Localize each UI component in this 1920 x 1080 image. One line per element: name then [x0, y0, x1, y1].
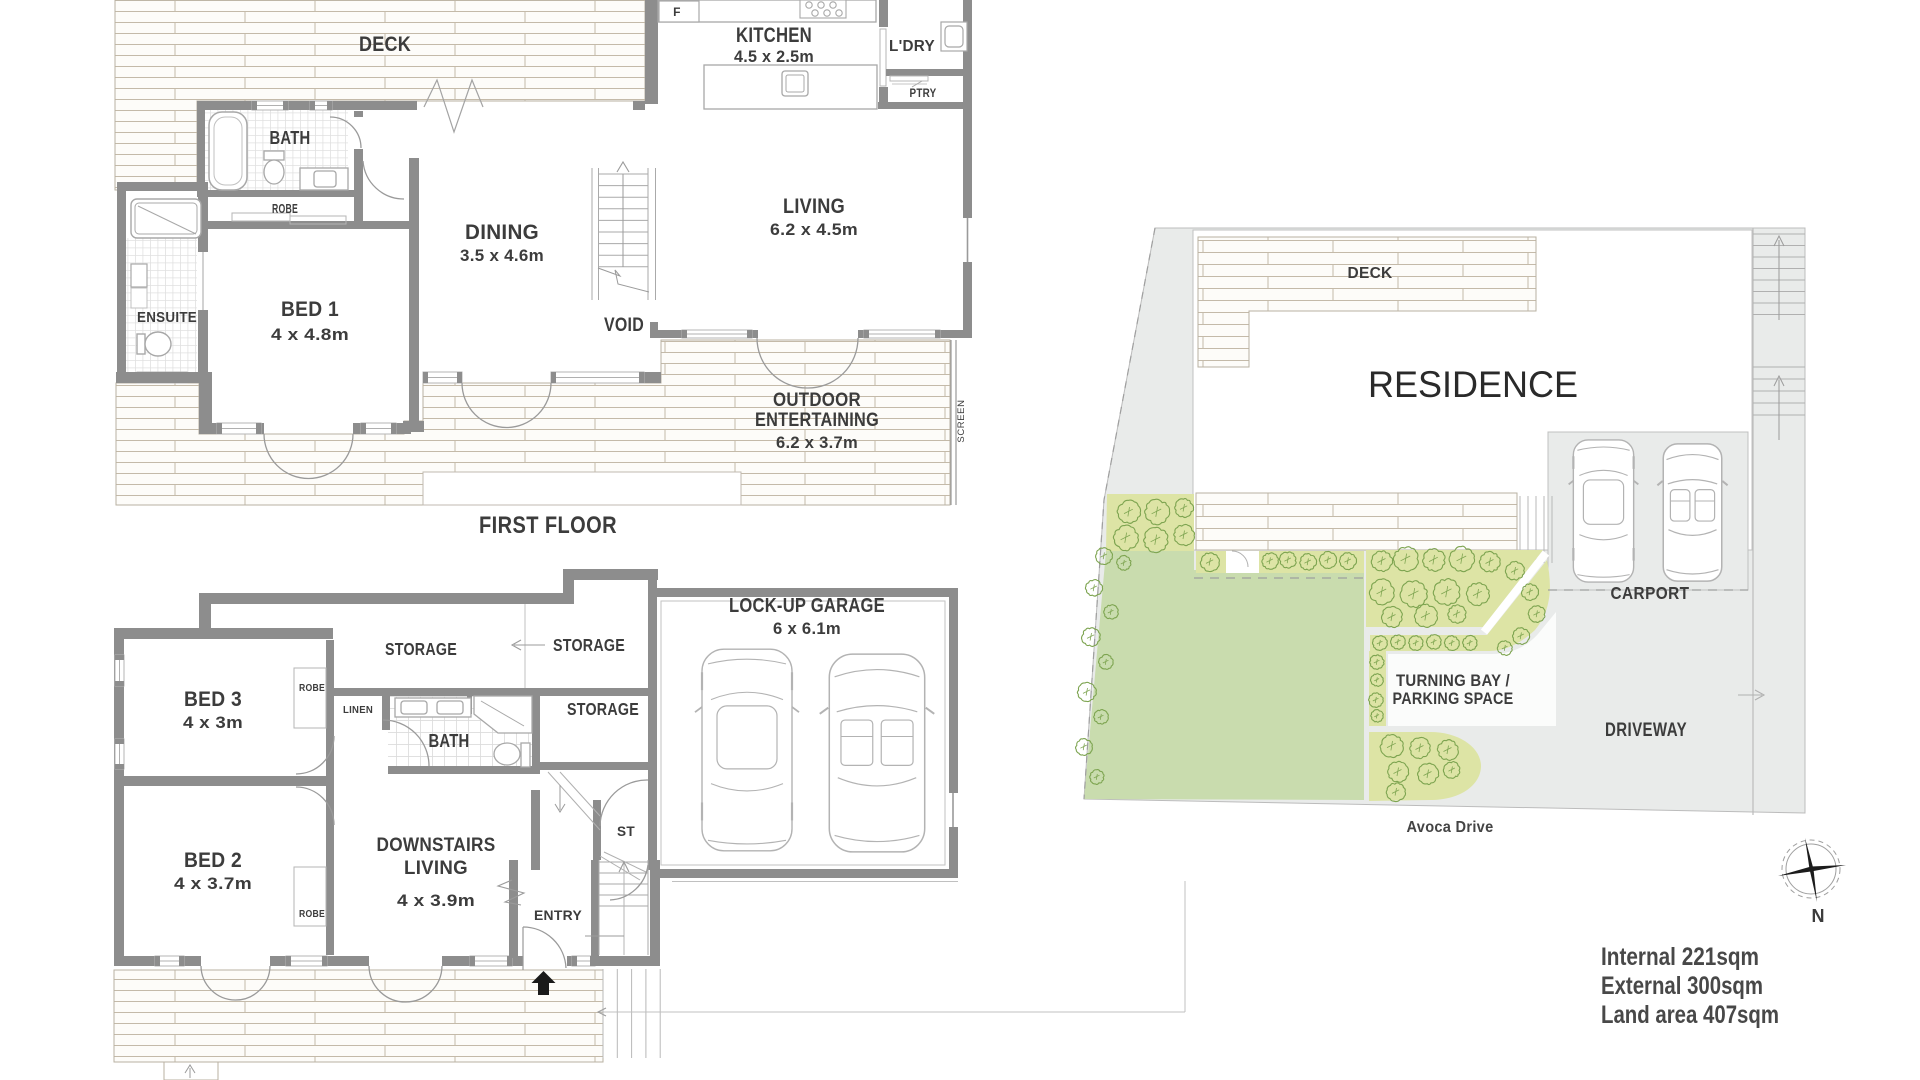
svg-text:DRIVEWAY: DRIVEWAY [1605, 720, 1687, 741]
svg-text:PTRY: PTRY [910, 88, 937, 100]
svg-text:CARPORT: CARPORT [1611, 583, 1690, 603]
svg-text:BED 1: BED 1 [281, 298, 339, 321]
svg-text:BED 2: BED 2 [184, 849, 242, 872]
svg-text:PARKING SPACE: PARKING SPACE [1393, 690, 1514, 708]
svg-text:L'DRY: L'DRY [889, 38, 935, 55]
svg-text:4 x 3.9m: 4 x 3.9m [397, 891, 475, 910]
svg-text:STORAGE: STORAGE [567, 699, 639, 719]
svg-text:ENTRY: ENTRY [534, 907, 582, 923]
svg-text:DINING: DINING [465, 221, 539, 244]
svg-text:DECK: DECK [359, 33, 411, 56]
svg-text:VOID: VOID [604, 315, 644, 336]
svg-text:External 300sqm: External 300sqm [1601, 972, 1763, 1000]
svg-text:STORAGE: STORAGE [385, 639, 457, 659]
svg-text:RESIDENCE: RESIDENCE [1368, 363, 1578, 405]
svg-text:4 x 3m: 4 x 3m [183, 713, 243, 732]
svg-text:KITCHEN: KITCHEN [736, 24, 812, 47]
svg-text:4 x 4.8m: 4 x 4.8m [271, 325, 349, 344]
svg-text:BATH: BATH [270, 127, 311, 148]
svg-text:Internal 221sqm: Internal 221sqm [1601, 943, 1759, 971]
svg-text:SCREEN: SCREEN [956, 399, 967, 442]
svg-text:BED 3: BED 3 [184, 688, 242, 711]
svg-text:Avoca Drive: Avoca Drive [1407, 819, 1494, 836]
svg-text:ROBE: ROBE [299, 682, 325, 694]
svg-text:6.2 x 3.7m: 6.2 x 3.7m [776, 433, 858, 452]
svg-text:DOWNSTAIRS: DOWNSTAIRS [377, 835, 496, 856]
svg-text:LIVING: LIVING [783, 195, 845, 218]
svg-text:ROBE: ROBE [299, 908, 325, 920]
svg-text:ENTERTAINING: ENTERTAINING [755, 410, 879, 431]
svg-text:OUTDOOR: OUTDOOR [773, 390, 861, 411]
svg-text:LINEN: LINEN [343, 704, 373, 716]
svg-text:3.5 x 4.6m: 3.5 x 4.6m [460, 246, 544, 265]
svg-text:6 x 6.1m: 6 x 6.1m [773, 619, 841, 638]
svg-text:ST: ST [617, 824, 635, 839]
svg-text:Land area 407sqm: Land area 407sqm [1601, 1001, 1779, 1029]
svg-text:LIVING: LIVING [404, 858, 468, 879]
svg-text:FIRST FLOOR: FIRST FLOOR [479, 512, 617, 539]
svg-text:6.2 x 4.5m: 6.2 x 4.5m [770, 220, 858, 239]
svg-text:4 x 3.7m: 4 x 3.7m [174, 874, 252, 893]
svg-text:BATH: BATH [429, 730, 470, 751]
svg-text:DECK: DECK [1348, 265, 1393, 282]
svg-text:4.5 x 2.5m: 4.5 x 2.5m [734, 47, 814, 66]
svg-text:N: N [1812, 906, 1825, 926]
svg-text:ENSUITE: ENSUITE [137, 309, 197, 326]
svg-text:TURNING BAY /: TURNING BAY / [1396, 672, 1510, 690]
svg-text:ROBE: ROBE [272, 202, 298, 216]
svg-text:LOCK-UP GARAGE: LOCK-UP GARAGE [729, 595, 885, 617]
svg-text:F: F [673, 5, 681, 19]
svg-text:STORAGE: STORAGE [553, 635, 625, 655]
